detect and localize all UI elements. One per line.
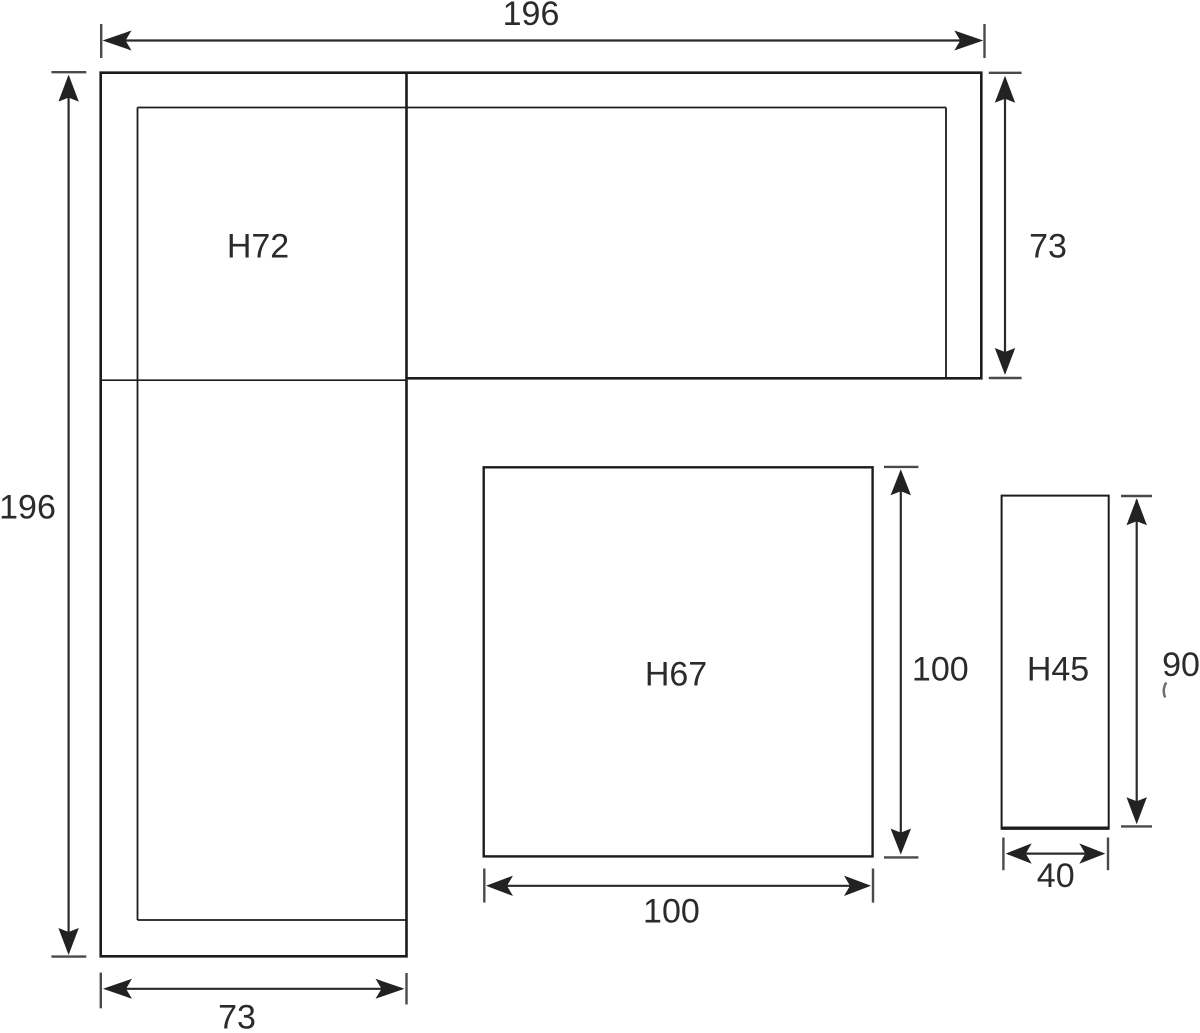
svg-text:196: 196: [0, 489, 56, 527]
svg-text:H67: H67: [645, 656, 707, 694]
svg-text:100: 100: [643, 893, 700, 931]
svg-text:H72: H72: [227, 227, 289, 265]
svg-text:100: 100: [912, 651, 969, 689]
svg-text:90: 90: [1162, 646, 1200, 684]
svg-text:H45: H45: [1027, 651, 1089, 689]
svg-text:196: 196: [503, 0, 560, 33]
svg-text:73: 73: [1029, 228, 1067, 266]
svg-text:40: 40: [1037, 857, 1075, 895]
svg-text:73: 73: [218, 999, 256, 1033]
